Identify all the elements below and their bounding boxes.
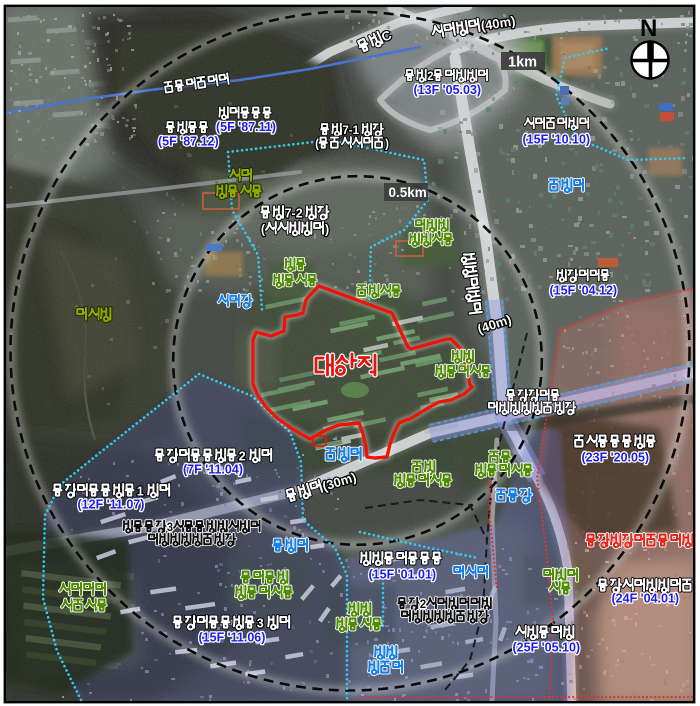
svg-text:(15F '10.10): (15F '10.10): [523, 133, 591, 147]
svg-text:): ): [325, 223, 329, 237]
svg-text:): ): [385, 139, 389, 151]
svg-text:7-1: 7-1: [342, 125, 359, 137]
svg-text:1: 1: [137, 485, 144, 499]
svg-text:1km: 1km: [508, 55, 537, 71]
svg-text:(5F '87.12): (5F '87.12): [158, 135, 219, 149]
svg-text:7-2: 7-2: [285, 207, 303, 221]
svg-text:(5F '87.11): (5F '87.11): [216, 120, 276, 134]
svg-text:N: N: [640, 15, 657, 42]
svg-text:(7F '11.04): (7F '11.04): [183, 463, 243, 477]
svg-text:2: 2: [427, 71, 433, 83]
svg-text:2: 2: [239, 450, 246, 464]
svg-text:(15F '11.06): (15F '11.06): [199, 631, 266, 645]
svg-text:(15F '04.12): (15F '04.12): [550, 284, 618, 298]
svg-text:0.5km: 0.5km: [389, 185, 427, 200]
svg-text:(23F '20.05): (23F '20.05): [582, 451, 650, 465]
svg-text:(25F '05.10): (25F '05.10): [513, 641, 581, 655]
svg-text:(13F '05.03): (13F '05.03): [414, 83, 482, 97]
svg-text:(15F '01.01): (15F '01.01): [369, 568, 437, 582]
svg-text:3: 3: [257, 617, 264, 631]
svg-text:(: (: [315, 139, 319, 151]
svg-text:(24F '04.01): (24F '04.01): [612, 592, 680, 606]
svg-text:(12F '11.07): (12F '11.07): [78, 498, 145, 512]
